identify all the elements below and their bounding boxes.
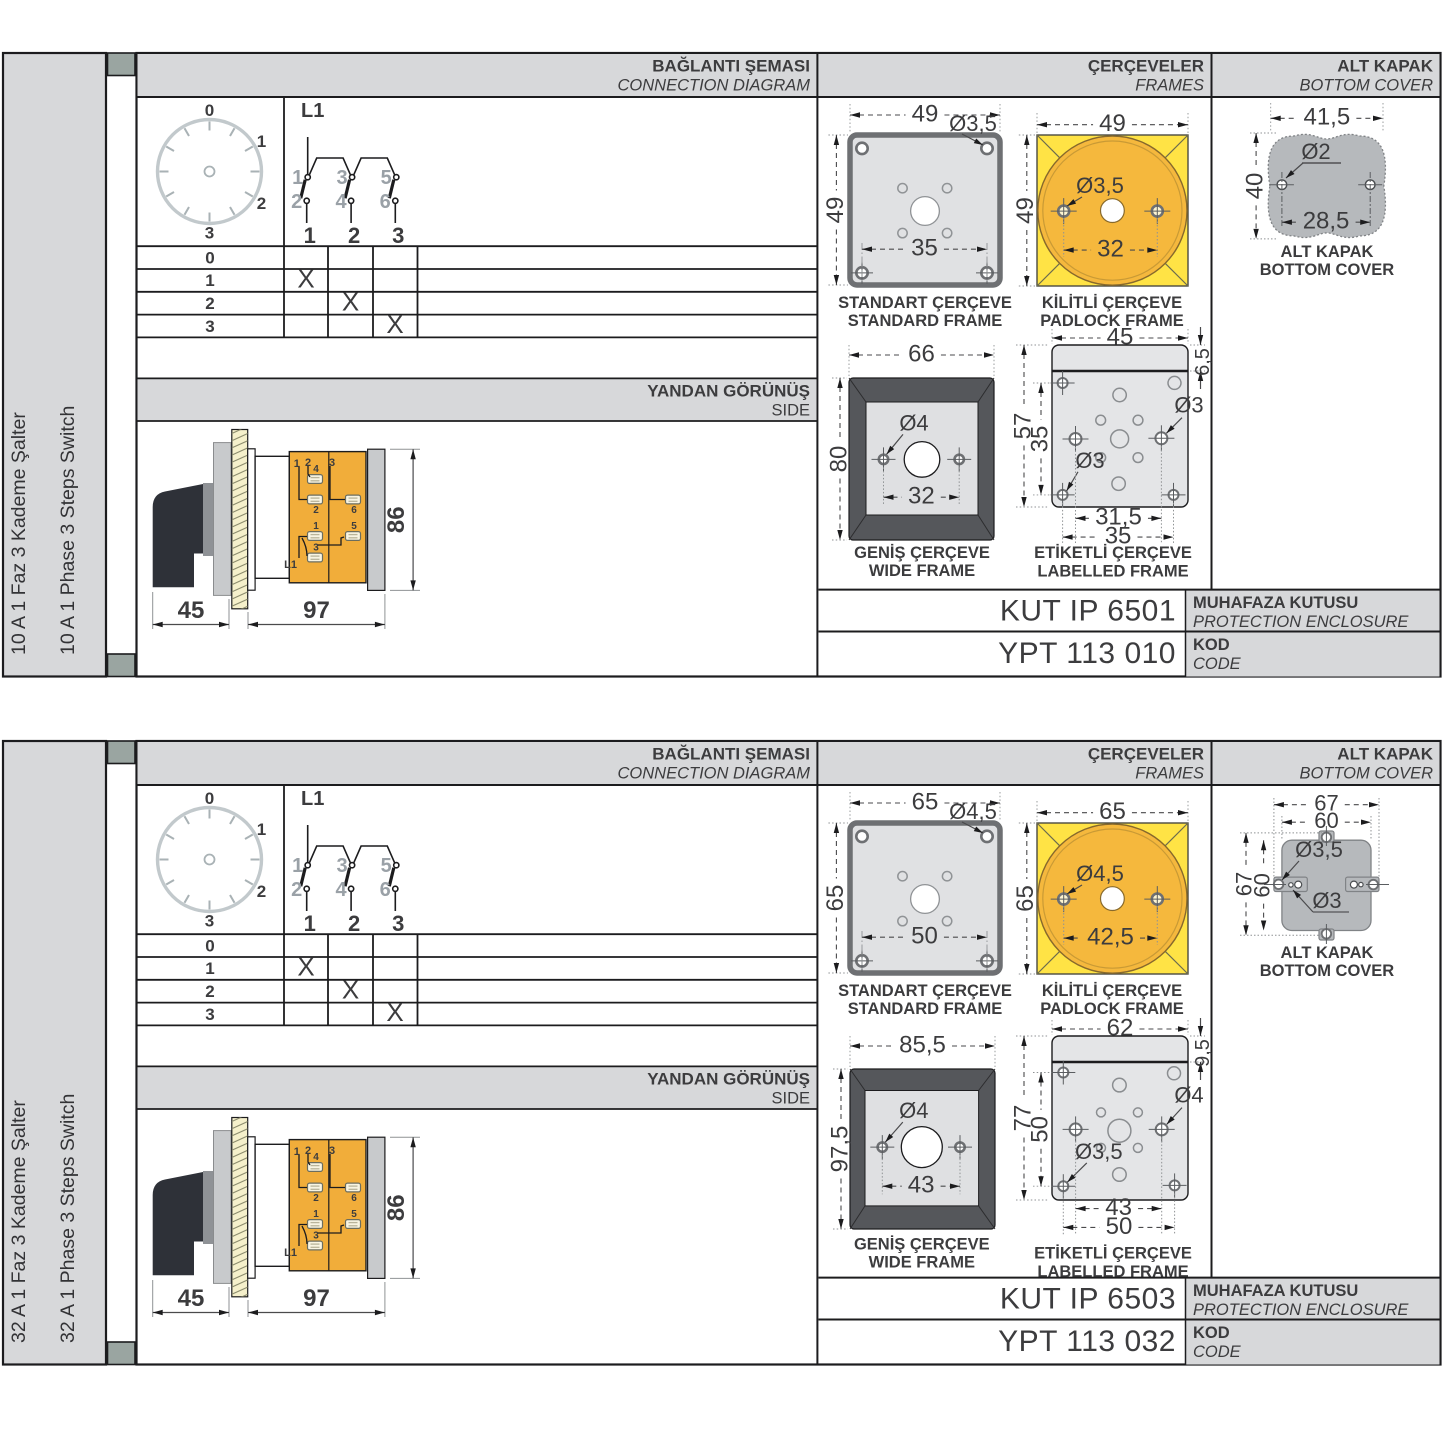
svg-text:BOTTOM COVER: BOTTOM COVER [1260,962,1395,980]
svg-text:GENİŞ ÇERÇEVE: GENİŞ ÇERÇEVE [854,1236,990,1254]
svg-text:ALT KAPAK: ALT KAPAK [1337,745,1433,764]
svg-text:1: 1 [205,959,214,978]
svg-text:SIDE: SIDE [771,1090,810,1108]
svg-text:3: 3 [392,911,404,936]
svg-text:0: 0 [205,248,214,267]
svg-text:SIDE: SIDE [771,402,810,420]
svg-text:32 A 1 Faz 3 Kademe Şalter: 32 A 1 Faz 3 Kademe Şalter [8,1100,30,1343]
svg-text:CODE: CODE [1193,1343,1242,1361]
svg-text:42,5: 42,5 [1087,924,1134,951]
svg-text:YANDAN GÖRÜNÜŞ: YANDAN GÖRÜNÜŞ [647,1070,810,1089]
svg-text:BOTTOM COVER: BOTTOM COVER [1260,261,1395,279]
svg-text:Ø2: Ø2 [1301,139,1330,164]
svg-text:5: 5 [351,521,357,532]
svg-text:97,5: 97,5 [826,1126,853,1173]
svg-text:2: 2 [313,505,319,516]
svg-text:10 A 1 Phase 3 Steps Switch: 10 A 1 Phase 3 Steps Switch [57,406,79,655]
svg-text:1: 1 [294,458,300,470]
svg-text:5: 5 [381,855,392,877]
svg-text:49: 49 [1099,110,1126,137]
svg-text:ETİKETLİ ÇERÇEVE: ETİKETLİ ÇERÇEVE [1034,1245,1192,1263]
svg-text:Ø3: Ø3 [1174,393,1203,418]
svg-text:L1: L1 [284,559,297,571]
svg-text:50: 50 [911,923,938,950]
svg-text:KİLİTLİ ÇERÇEVE: KİLİTLİ ÇERÇEVE [1042,294,1182,312]
svg-text:1: 1 [257,820,266,839]
svg-text:0: 0 [205,789,214,808]
svg-text:35: 35 [911,235,938,262]
svg-text:X: X [386,997,403,1027]
svg-text:1: 1 [313,1209,319,1220]
svg-text:4: 4 [335,879,347,901]
svg-text:ÇERÇEVELER: ÇERÇEVELER [1088,745,1204,764]
svg-text:6: 6 [351,505,357,516]
svg-text:ALT KAPAK: ALT KAPAK [1281,944,1374,962]
svg-text:4: 4 [313,1152,319,1163]
svg-text:ÇERÇEVELER: ÇERÇEVELER [1088,57,1204,76]
svg-text:49: 49 [822,197,849,224]
svg-text:YPT 113 010: YPT 113 010 [998,637,1176,670]
svg-text:Ø3: Ø3 [1312,888,1341,913]
svg-text:Ø3,5: Ø3,5 [1295,837,1343,862]
svg-text:45: 45 [178,597,205,624]
svg-text:PROTECTION ENCLOSURE: PROTECTION ENCLOSURE [1193,1301,1409,1319]
svg-text:2: 2 [305,457,311,469]
svg-text:BOTTOM COVER: BOTTOM COVER [1299,77,1433,95]
svg-text:65: 65 [1012,885,1039,912]
svg-text:3: 3 [392,223,404,248]
svg-text:2: 2 [348,223,360,248]
svg-text:6,5: 6,5 [1192,348,1214,376]
svg-text:0: 0 [205,101,214,120]
svg-text:65: 65 [822,885,849,912]
svg-text:Ø4: Ø4 [1174,1083,1203,1108]
svg-text:1: 1 [205,271,214,290]
svg-text:40: 40 [1242,173,1269,200]
svg-text:60: 60 [1249,873,1274,897]
svg-text:6: 6 [351,1193,357,1204]
svg-text:ALT KAPAK: ALT KAPAK [1337,57,1433,76]
svg-text:FRAMES: FRAMES [1135,765,1204,783]
svg-text:32: 32 [908,483,935,510]
svg-text:35: 35 [1026,426,1053,453]
svg-text:WIDE FRAME: WIDE FRAME [869,562,975,580]
svg-text:FRAMES: FRAMES [1135,77,1204,95]
svg-text:YPT 113 032: YPT 113 032 [998,1325,1176,1358]
svg-text:ETİKETLİ ÇERÇEVE: ETİKETLİ ÇERÇEVE [1034,544,1192,562]
svg-text:YANDAN GÖRÜNÜŞ: YANDAN GÖRÜNÜŞ [647,382,810,401]
svg-text:10 A 1 Faz 3 Kademe Şalter: 10 A 1 Faz 3 Kademe Şalter [8,412,30,655]
svg-text:49: 49 [1012,197,1039,224]
svg-text:1: 1 [313,521,319,532]
svg-text:Ø4,5: Ø4,5 [1076,861,1124,886]
svg-text:MUHAFAZA KUTUSU: MUHAFAZA KUTUSU [1193,594,1358,612]
svg-text:6: 6 [380,879,391,901]
svg-text:1: 1 [257,132,266,151]
svg-text:80: 80 [825,446,852,473]
svg-text:STANDART ÇERÇEVE: STANDART ÇERÇEVE [838,294,1012,312]
svg-text:BAĞLANTI ŞEMASI: BAĞLANTI ŞEMASI [652,745,810,764]
svg-text:STANDARD FRAME: STANDARD FRAME [848,312,1003,330]
svg-text:1: 1 [304,911,316,936]
svg-text:L1: L1 [301,788,324,810]
svg-text:2: 2 [348,911,360,936]
svg-text:3: 3 [205,224,214,243]
svg-text:X: X [342,286,359,316]
svg-text:3: 3 [313,1231,319,1242]
svg-text:32: 32 [1097,236,1124,263]
svg-text:2: 2 [257,882,266,901]
svg-text:STANDARD FRAME: STANDARD FRAME [848,1000,1003,1018]
svg-text:2: 2 [205,294,214,313]
svg-text:Ø4,5: Ø4,5 [949,799,997,824]
svg-text:45: 45 [178,1285,205,1312]
svg-text:BOTTOM COVER: BOTTOM COVER [1299,765,1433,783]
svg-text:Ø3,5: Ø3,5 [1076,173,1124,198]
svg-text:5: 5 [351,1209,357,1220]
svg-text:Ø3,5: Ø3,5 [949,111,997,136]
svg-text:62: 62 [1107,1014,1134,1041]
svg-text:1: 1 [294,1146,300,1158]
svg-text:5: 5 [381,167,392,189]
svg-text:2: 2 [305,1145,311,1157]
svg-text:49: 49 [912,100,939,127]
svg-text:65: 65 [1099,798,1126,825]
svg-text:1: 1 [304,223,316,248]
svg-text:GENİŞ ÇERÇEVE: GENİŞ ÇERÇEVE [854,544,990,562]
svg-text:2: 2 [257,194,266,213]
svg-text:CODE: CODE [1193,655,1242,673]
svg-text:3: 3 [205,317,214,336]
svg-text:50: 50 [1106,1213,1133,1240]
svg-text:2: 2 [291,879,302,901]
svg-text:X: X [297,952,314,982]
svg-text:X: X [342,974,359,1004]
svg-text:3: 3 [313,543,319,554]
svg-text:3: 3 [336,167,347,189]
svg-text:KUT IP 6503: KUT IP 6503 [1000,1283,1176,1316]
svg-text:1: 1 [292,855,303,877]
svg-text:L1: L1 [301,100,324,122]
svg-text:60: 60 [1314,808,1338,833]
svg-text:Ø4: Ø4 [899,1098,928,1123]
svg-text:43: 43 [908,1172,935,1199]
svg-text:86: 86 [383,1194,410,1221]
svg-text:KOD: KOD [1193,636,1230,654]
svg-text:9,5: 9,5 [1192,1039,1214,1067]
svg-text:97: 97 [303,597,330,624]
svg-text:Ø3: Ø3 [1075,448,1104,473]
svg-text:BAĞLANTI ŞEMASI: BAĞLANTI ŞEMASI [652,57,810,76]
svg-text:Ø3,5: Ø3,5 [1075,1139,1123,1164]
svg-text:Ø4: Ø4 [899,410,928,435]
svg-text:ALT KAPAK: ALT KAPAK [1281,243,1374,261]
svg-text:3: 3 [336,855,347,877]
svg-text:KİLİTLİ ÇERÇEVE: KİLİTLİ ÇERÇEVE [1042,982,1182,1000]
svg-text:2: 2 [291,191,302,213]
svg-text:2: 2 [313,1193,319,1204]
svg-text:6: 6 [380,191,391,213]
svg-text:3: 3 [329,1145,335,1157]
svg-text:KOD: KOD [1193,1324,1230,1342]
svg-text:STANDART ÇERÇEVE: STANDART ÇERÇEVE [838,982,1012,1000]
svg-text:66: 66 [908,340,935,367]
svg-text:65: 65 [912,788,939,815]
svg-text:41,5: 41,5 [1303,104,1350,131]
svg-text:4: 4 [313,464,319,475]
svg-text:85,5: 85,5 [899,1031,946,1058]
svg-text:32 A 1 Phase 3 Steps Switch: 32 A 1 Phase 3 Steps Switch [57,1094,79,1343]
svg-text:MUHAFAZA KUTUSU: MUHAFAZA KUTUSU [1193,1282,1358,1300]
svg-text:0: 0 [205,936,214,955]
svg-text:1: 1 [292,167,303,189]
svg-text:WIDE FRAME: WIDE FRAME [869,1254,975,1272]
svg-text:LABELLED FRAME: LABELLED FRAME [1037,563,1188,581]
svg-text:L1: L1 [284,1247,297,1259]
svg-text:CONNECTION DIAGRAM: CONNECTION DIAGRAM [617,77,810,95]
svg-text:PROTECTION ENCLOSURE: PROTECTION ENCLOSURE [1193,613,1409,631]
svg-text:X: X [297,264,314,294]
svg-text:50: 50 [1026,1116,1053,1143]
svg-text:3: 3 [329,457,335,469]
svg-text:3: 3 [205,1005,214,1024]
svg-text:3: 3 [205,912,214,931]
svg-text:4: 4 [335,191,347,213]
svg-text:CONNECTION DIAGRAM: CONNECTION DIAGRAM [617,765,810,783]
svg-text:28,5: 28,5 [1303,208,1350,235]
svg-text:X: X [386,309,403,339]
svg-text:2: 2 [205,982,214,1001]
svg-text:97: 97 [303,1285,330,1312]
svg-text:45: 45 [1107,323,1134,350]
svg-text:86: 86 [383,506,410,533]
svg-text:KUT IP 6501: KUT IP 6501 [1000,595,1176,628]
